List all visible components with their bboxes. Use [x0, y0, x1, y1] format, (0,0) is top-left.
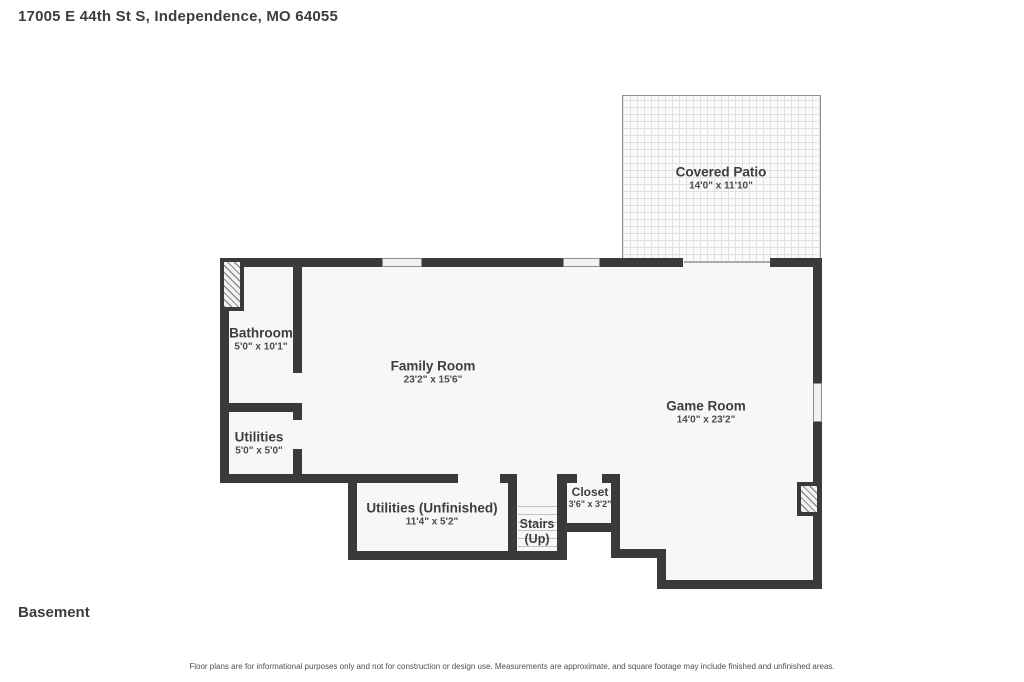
room-label-utilities-unfinished: Utilities (Unfinished) 11'4" x 5'2" [366, 501, 497, 530]
wall-top-b [422, 258, 563, 267]
room-direction: (Up) [520, 532, 555, 547]
room-label-closet: Closet 3'6" x 3'2" [569, 485, 612, 511]
wall-stairs-right [557, 474, 567, 560]
wall-closet-top-left [557, 474, 577, 483]
wall-bottom-right [657, 580, 822, 589]
room-dims: 11'4" x 5'2" [366, 517, 497, 530]
room-name: Utilities (Unfinished) [366, 501, 497, 517]
wall-utilities-right [293, 449, 302, 483]
room-name: Closet [569, 485, 612, 499]
wall-top-c [600, 258, 683, 267]
window-right [813, 383, 822, 422]
wall-bathroom-utilities-divider [220, 403, 302, 412]
patio-opening-threshold [684, 261, 770, 263]
floor-main [224, 262, 818, 479]
room-dims: 14'0" x 11'10" [676, 181, 767, 194]
window-top-right [563, 258, 600, 267]
room-dims: 5'0" x 5'0" [235, 446, 284, 459]
room-label-game-room: Game Room 14'0" x 23'2" [666, 399, 746, 428]
floor-gameroom-notch [616, 479, 661, 556]
room-dims: 23'2" x 15'6" [391, 375, 476, 388]
stair-tread [518, 514, 557, 515]
room-label-utilities: Utilities 5'0" x 5'0" [235, 430, 284, 459]
room-dims: 14'0" x 23'2" [666, 415, 746, 428]
wall-closet-bottom [557, 523, 620, 532]
wall-closet-right [611, 474, 620, 558]
window-top-left [382, 258, 422, 267]
stair-tread [518, 506, 557, 507]
wall-uu-left [348, 474, 357, 560]
wall-uu-bottom [348, 551, 567, 560]
floor-level-label: Basement [18, 604, 90, 621]
disclaimer-text: Floor plans are for informational purpos… [0, 662, 1024, 671]
wall-bathroom-right [293, 258, 302, 373]
room-dims: 3'6" x 3'2" [569, 500, 612, 511]
floor-plan-canvas: 17005 E 44th St S, Independence, MO 6405… [0, 0, 1024, 682]
wall-uu-top-a [348, 474, 458, 483]
room-name: Bathroom [229, 326, 293, 342]
room-name: Covered Patio [676, 165, 767, 181]
room-dims: 5'0" x 10'1" [229, 342, 293, 355]
bathroom-chase-hatch [220, 258, 244, 311]
chimney-hatch [797, 482, 821, 516]
room-name: Utilities [235, 430, 284, 446]
wall-stairs-left [508, 474, 517, 560]
floor-gameroom-lower [661, 479, 818, 585]
room-name: Family Room [391, 359, 476, 375]
room-label-family-room: Family Room 23'2" x 15'6" [391, 359, 476, 388]
room-name: Stairs [520, 517, 555, 532]
room-name: Game Room [666, 399, 746, 415]
room-label-stairs: Stairs (Up) [520, 517, 555, 547]
room-label-covered-patio: Covered Patio 14'0" x 11'10" [676, 165, 767, 194]
address-title: 17005 E 44th St S, Independence, MO 6405… [18, 8, 338, 25]
wall-right-a [813, 258, 822, 383]
wall-left-bottom [220, 474, 357, 483]
room-label-bathroom: Bathroom 5'0" x 10'1" [229, 326, 293, 355]
